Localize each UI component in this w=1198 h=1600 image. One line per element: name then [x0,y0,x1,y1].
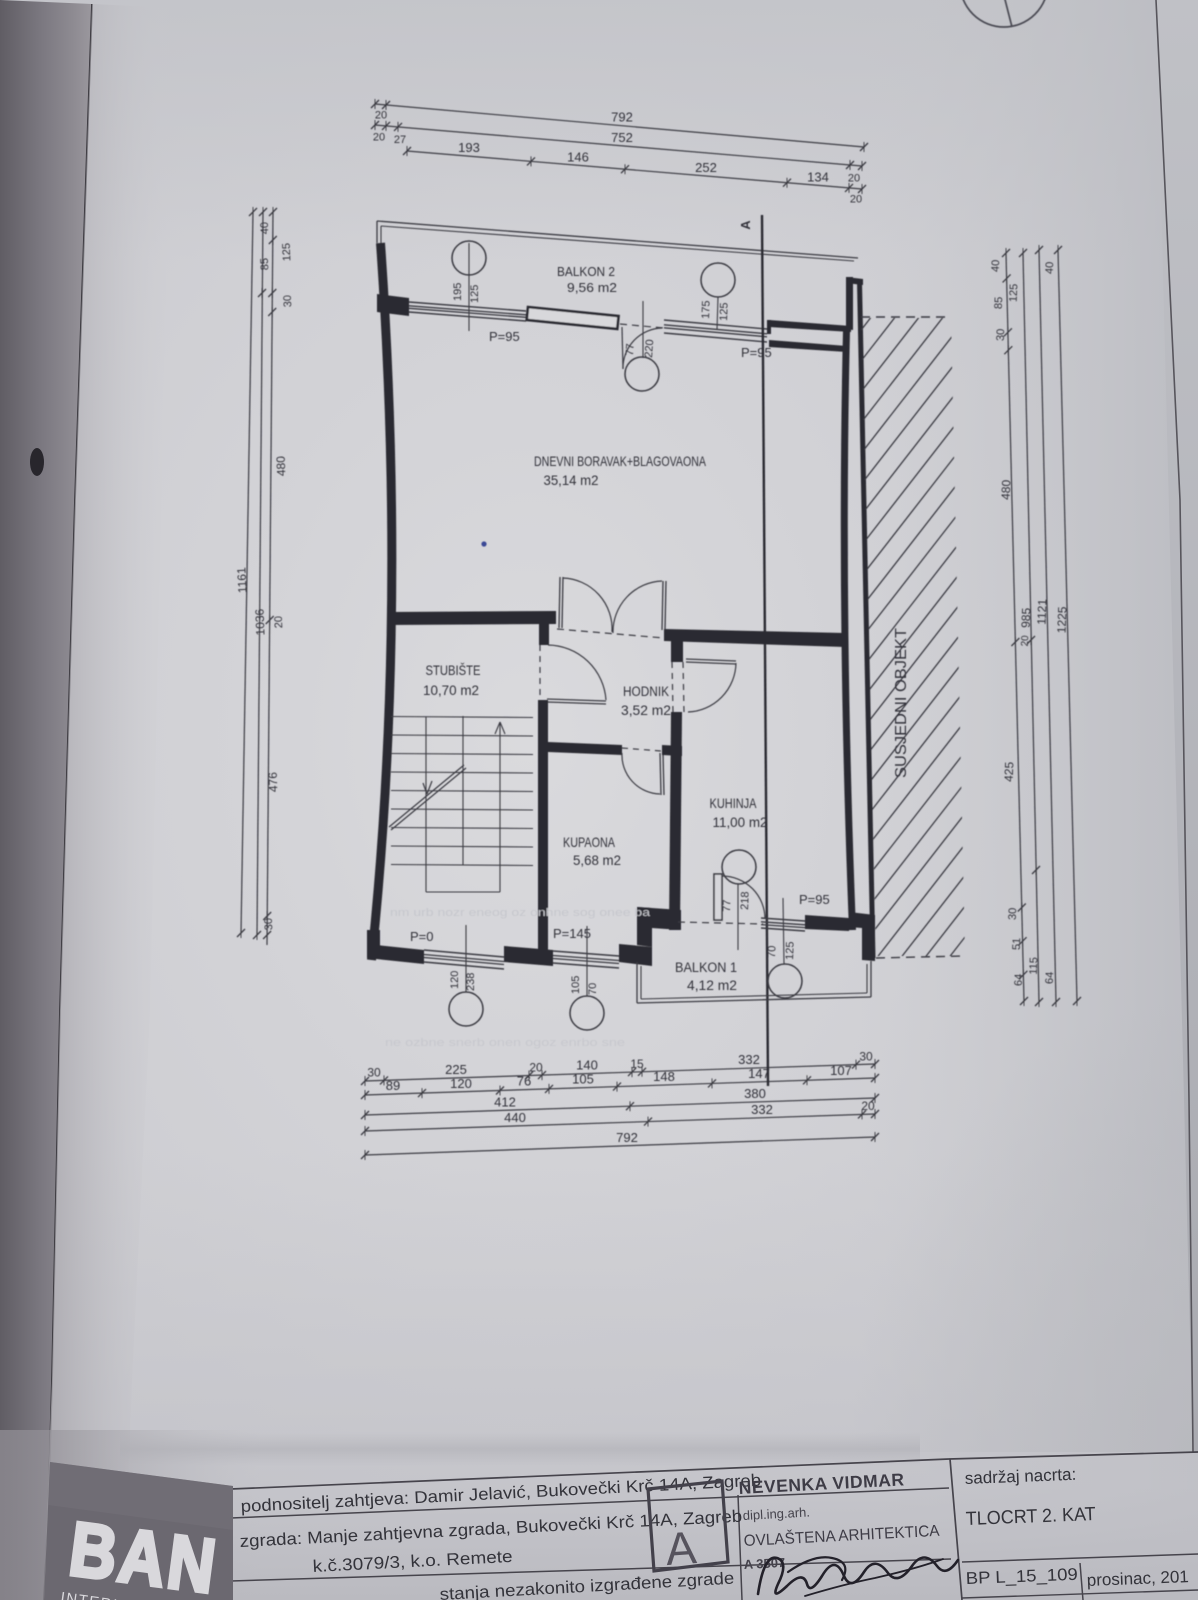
svg-text:40: 40 [990,260,1002,273]
svg-text:P=95: P=95 [741,345,772,360]
svg-text:11,00 m2: 11,00 m2 [713,814,768,830]
svg-text:115: 115 [1028,957,1041,975]
svg-text:DNEVNI BORAVAK+BLAGOVAONA: DNEVNI BORAVAK+BLAGOVAONA [534,454,706,469]
svg-text:20: 20 [373,131,385,143]
svg-text:985: 985 [1019,607,1034,628]
svg-text:51: 51 [1011,938,1023,951]
svg-text:77: 77 [721,899,733,912]
svg-text:3,52 m2: 3,52 m2 [621,703,671,718]
svg-text:27: 27 [394,134,406,146]
svg-text:218: 218 [739,891,752,910]
svg-text:125: 125 [281,243,294,262]
svg-text:35,14 m2: 35,14 m2 [544,473,599,488]
svg-text:220: 220 [643,339,656,358]
svg-text:70: 70 [587,983,599,995]
svg-text:238: 238 [465,973,477,991]
svg-text:BALKON 1: BALKON 1 [675,960,737,975]
svg-text:76: 76 [517,1074,531,1089]
svg-text:480: 480 [274,456,289,477]
svg-text:412: 412 [494,1094,516,1109]
svg-text:KUHINJA: KUHINJA [710,795,758,811]
svg-text:30: 30 [263,918,275,931]
svg-text:ne ozbne snerb onen ogoz enrbo: ne ozbne snerb onen ogoz enrbo sne [385,1037,625,1049]
svg-text:195: 195 [452,283,464,301]
svg-text:20: 20 [273,616,285,629]
svg-text:40: 40 [1044,262,1056,275]
svg-text:30: 30 [1007,908,1019,921]
svg-text:125: 125 [469,285,481,303]
svg-text:30: 30 [282,295,294,308]
svg-text:KUPAONA: KUPAONA [563,834,615,850]
svg-text:1225: 1225 [1055,606,1070,633]
svg-text:125: 125 [1008,284,1021,303]
svg-text:1121: 1121 [1035,598,1050,625]
svg-text:40: 40 [259,222,271,235]
svg-text:193: 193 [458,140,480,155]
svg-text:SUSJEDNI OBJEKT: SUSJEDNI OBJEKT [893,628,910,778]
svg-text:10,70 m2: 10,70 m2 [423,682,479,698]
svg-text:105: 105 [572,1072,594,1087]
svg-text:30: 30 [995,329,1007,342]
svg-text:89: 89 [386,1078,400,1093]
svg-text:105: 105 [570,976,582,994]
svg-text:480: 480 [999,479,1014,500]
svg-text:107: 107 [830,1063,852,1078]
svg-text:425: 425 [1002,761,1017,782]
svg-text:140: 140 [576,1058,598,1073]
svg-text:5,68 m2: 5,68 m2 [573,852,621,868]
svg-text:792: 792 [611,110,633,125]
svg-text:77: 77 [624,343,637,356]
svg-text:125: 125 [718,302,731,321]
svg-text:20: 20 [529,1060,543,1074]
svg-text:85: 85 [993,297,1005,310]
svg-text:4,12 m2: 4,12 m2 [687,978,737,993]
svg-text:64: 64 [1044,972,1056,985]
svg-text:146: 146 [567,149,589,164]
svg-text:20: 20 [850,194,862,206]
svg-text:HODNIK: HODNIK [623,684,669,699]
svg-text:380: 380 [744,1086,766,1101]
svg-text:15: 15 [630,1057,644,1071]
svg-text:1036: 1036 [253,608,268,635]
svg-text:134: 134 [807,169,829,184]
svg-text:20: 20 [1020,635,1031,647]
svg-text:20: 20 [375,110,387,122]
svg-text:792: 792 [616,1130,638,1145]
svg-text:20: 20 [861,1099,875,1113]
svg-text:332: 332 [751,1102,773,1117]
svg-text:70: 70 [766,945,778,958]
svg-text:A: A [738,220,753,230]
svg-text:nm urb nozr eneog oz onhne sog: nm urb nozr eneog oz onhne sog onee ba [390,907,651,919]
svg-text:175: 175 [700,300,713,319]
svg-text:64: 64 [1013,974,1025,987]
svg-text:752: 752 [611,130,633,145]
svg-text:prosinac, 201: prosinac, 201 [1086,1567,1189,1590]
svg-text:30: 30 [367,1066,381,1080]
svg-text:476: 476 [266,772,281,793]
svg-text:P=95: P=95 [489,329,520,344]
svg-text:A: A [664,1521,699,1575]
svg-text:30: 30 [859,1049,873,1063]
svg-text:147: 147 [748,1066,770,1081]
svg-text:BALKON 2: BALKON 2 [557,264,615,279]
svg-text:225: 225 [445,1062,467,1077]
svg-text:P=145: P=145 [553,926,591,941]
svg-text:148: 148 [653,1069,675,1084]
svg-text:STUBIŠTE: STUBIŠTE [426,662,481,678]
svg-text:120: 120 [450,1076,472,1091]
svg-text:9,56 m2: 9,56 m2 [567,280,617,295]
svg-text:1161: 1161 [234,567,249,594]
svg-text:85: 85 [259,258,271,271]
svg-text:P=0: P=0 [410,929,434,944]
svg-text:252: 252 [695,160,717,175]
svg-text:P=95: P=95 [799,892,830,907]
svg-text:20: 20 [848,172,860,184]
svg-text:440: 440 [504,1110,526,1125]
svg-text:125: 125 [784,941,797,960]
svg-text:120: 120 [449,971,461,989]
